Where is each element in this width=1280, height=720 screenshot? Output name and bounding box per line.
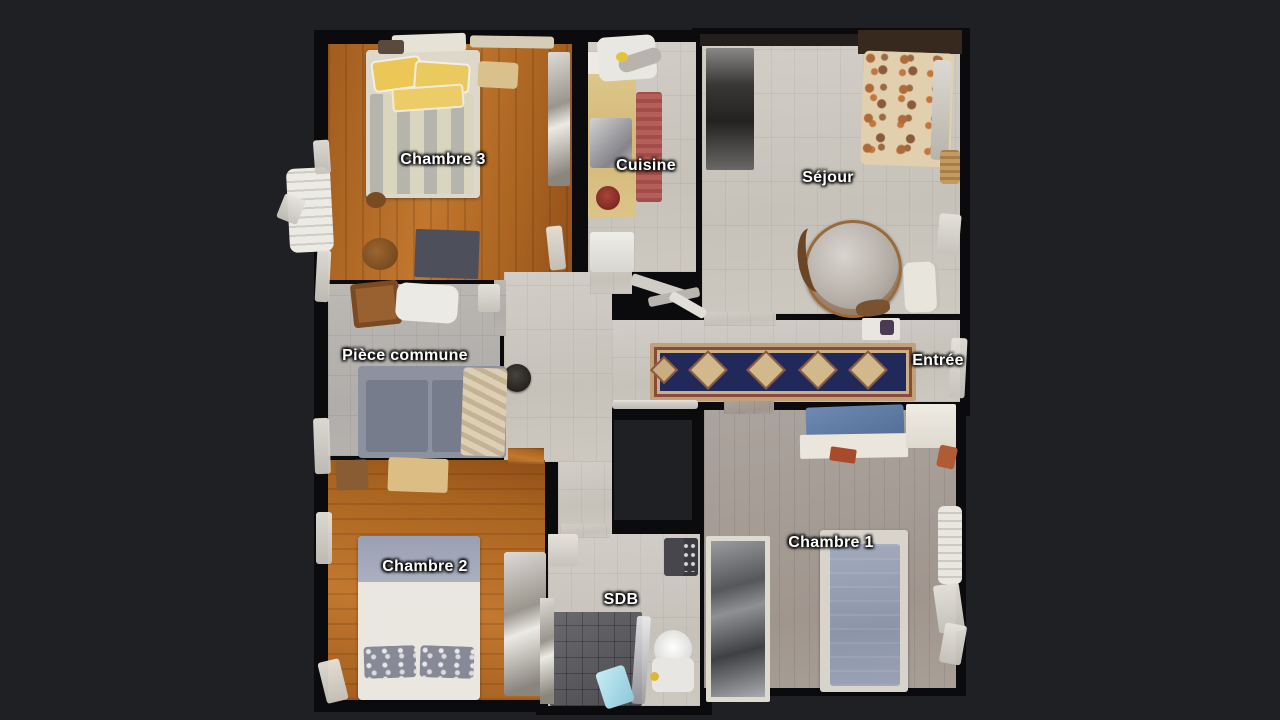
bed-mattress-blue — [830, 544, 900, 686]
armchair-white — [903, 261, 942, 313]
room-label-sejour: Séjour — [802, 169, 854, 187]
wicker-basket — [940, 150, 960, 184]
sofa-cushion — [366, 380, 428, 452]
wall-top-highlight — [470, 35, 554, 48]
toilet-brush — [650, 672, 659, 681]
curtain — [936, 213, 961, 255]
room-label-chambre-1: Chambre 1 — [788, 534, 873, 552]
room-label-sdb: SDB — [604, 591, 639, 609]
stool — [362, 238, 398, 270]
door-sejour-corridor — [704, 312, 776, 326]
bed-pillow-yellow — [391, 84, 464, 113]
fridge — [590, 232, 634, 272]
room-label-chambre-3: Chambre 3 — [400, 151, 485, 169]
wall-top-highlight — [313, 139, 331, 174]
washer-knobs — [682, 542, 696, 572]
sejour-top-wall-band — [700, 34, 860, 46]
wall-top-highlight — [612, 400, 698, 409]
wooden-chair — [350, 280, 402, 329]
tv-cabinet — [706, 48, 754, 170]
wall-top-highlight — [315, 250, 332, 303]
cooking-pot — [596, 186, 620, 210]
kitchen-runner-rug — [636, 92, 662, 202]
small-dish — [616, 52, 628, 62]
white-garment — [395, 282, 459, 324]
room-label-cuisine: Cuisine — [616, 157, 676, 175]
bench — [477, 61, 518, 89]
closet-white — [906, 404, 956, 448]
console-object — [880, 320, 894, 335]
door-chambre-1 — [724, 400, 774, 414]
bed-pillow-gray — [419, 645, 474, 679]
wall-top-highlight — [316, 512, 332, 564]
headboard-dark — [378, 40, 404, 54]
room-label-chambre-2: Chambre 2 — [382, 558, 467, 576]
storage-box-brown — [335, 459, 369, 491]
door-chambre-2 — [508, 448, 544, 464]
wall-top-highlight — [540, 598, 554, 704]
sofa-blanket-beige — [460, 367, 507, 456]
wall-top-highlight — [313, 418, 331, 475]
bathroom-sink — [548, 534, 578, 566]
sofa-throw — [930, 60, 951, 161]
room-label-entree: Entrée — [912, 352, 964, 370]
room-label-piece-commune: Pièce commune — [342, 347, 468, 365]
floorplan-3d-view[interactable]: Chambre 3 Cuisine Séjour Pièce commune E… — [0, 0, 1280, 720]
storage-box-tan — [387, 457, 448, 493]
mirror-wardrobe — [706, 536, 770, 702]
white-object — [478, 284, 500, 312]
area-rug-dark — [414, 229, 480, 279]
radiator — [938, 506, 962, 584]
wardrobe — [548, 52, 570, 186]
bed-pillow-gray — [363, 645, 416, 679]
stool — [366, 192, 386, 208]
